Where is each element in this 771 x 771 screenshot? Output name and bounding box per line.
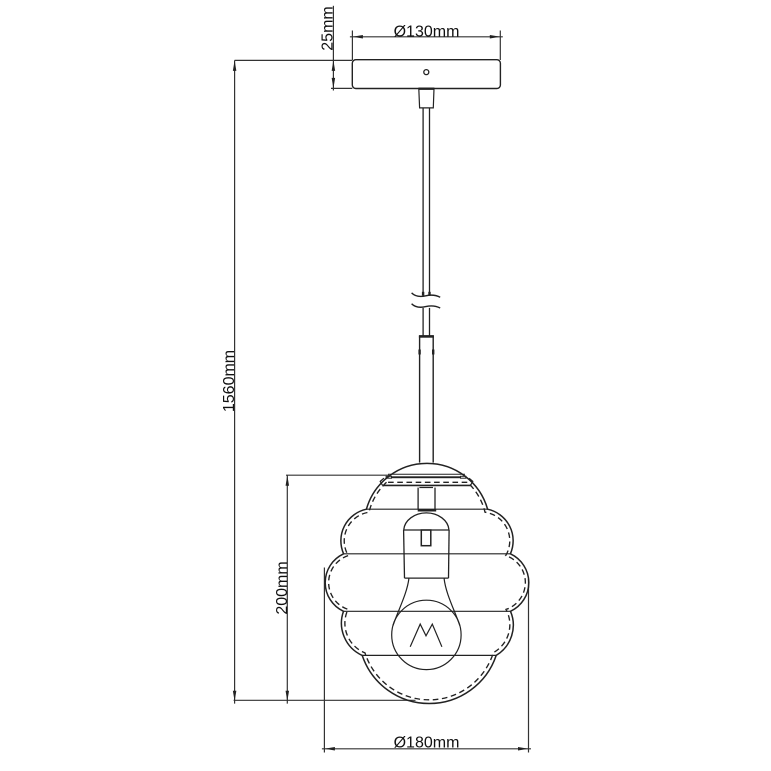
svg-text:Ø130mm: Ø130mm: [394, 24, 460, 41]
svg-text:Ø180mm: Ø180mm: [394, 734, 460, 751]
svg-text:25mm: 25mm: [319, 6, 336, 50]
svg-text:1560mm: 1560mm: [221, 350, 238, 412]
svg-text:200mm: 200mm: [274, 561, 291, 614]
